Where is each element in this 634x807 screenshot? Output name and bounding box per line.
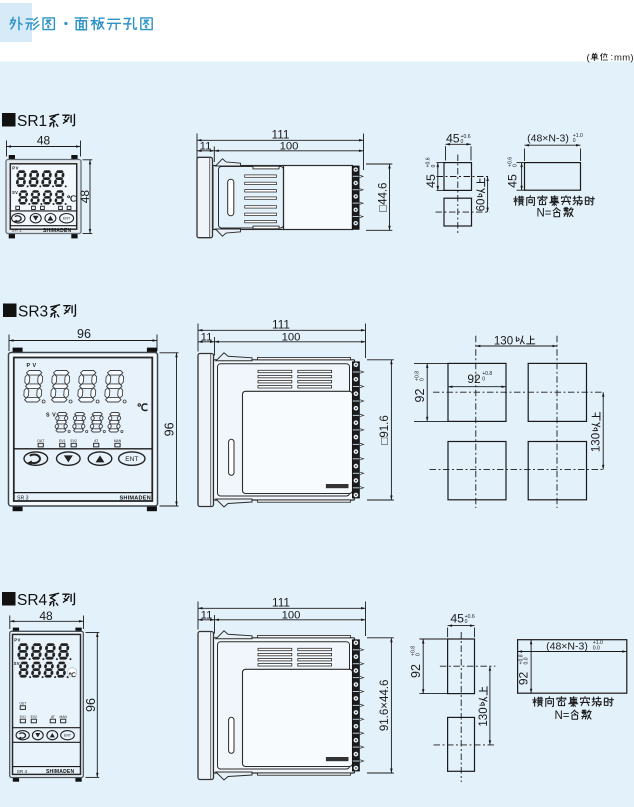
svg-text:96: 96 (77, 327, 91, 341)
svg-text:ENT: ENT (125, 456, 138, 463)
svg-text:ENT: ENT (64, 734, 72, 738)
svg-text:0: 0 (416, 653, 422, 656)
svg-text:AT: AT (51, 715, 55, 719)
svg-text:45: 45 (424, 174, 438, 188)
svg-text:0: 0 (512, 164, 518, 167)
svg-text:EV2: EV2 (70, 439, 77, 443)
svg-text:P V: P V (27, 363, 37, 369)
svg-text:SR3: SR3 (18, 304, 48, 321)
svg-text:mm): mm) (614, 53, 634, 64)
svg-text:SR1: SR1 (17, 113, 47, 130)
svg-text:□91.6: □91.6 (379, 415, 391, 444)
svg-text:S V: S V (46, 413, 56, 419)
svg-text:48: 48 (39, 609, 53, 623)
svg-text:92: 92 (517, 672, 531, 686)
svg-text:EV2: EV2 (31, 715, 37, 719)
svg-text:SHIMADEN: SHIMADEN (46, 769, 74, 775)
svg-text:130: 130 (478, 707, 490, 726)
svg-text:EV1: EV1 (20, 715, 26, 719)
svg-text:60: 60 (475, 199, 487, 212)
svg-text:SV: SV (14, 661, 20, 666)
svg-text:0: 0 (431, 165, 437, 168)
svg-text:MAN: MAN (114, 439, 122, 443)
svg-text:130: 130 (591, 433, 603, 452)
svg-text:0.0: 0.0 (523, 657, 529, 664)
svg-text:N=: N= (555, 710, 570, 722)
svg-text:□44.6: □44.6 (377, 183, 389, 212)
svg-text:MAN: MAN (60, 715, 68, 719)
svg-text:℃: ℃ (67, 193, 76, 203)
svg-text:SR 3: SR 3 (17, 495, 29, 501)
svg-text:PV: PV (12, 166, 19, 171)
svg-text:96: 96 (163, 422, 177, 436)
svg-text:0: 0 (420, 378, 426, 381)
svg-text:ENT: ENT (63, 217, 71, 221)
svg-text:96: 96 (84, 698, 98, 712)
svg-text:OUT: OUT (19, 702, 26, 706)
svg-text:92: 92 (409, 664, 423, 678)
svg-text:45: 45 (506, 174, 520, 188)
svg-text:92: 92 (413, 389, 427, 403)
svg-text:(48×N-3): (48×N-3) (546, 640, 588, 652)
svg-text:SR 4: SR 4 (17, 769, 28, 774)
svg-text:N=: N= (537, 208, 552, 220)
svg-text:111: 111 (272, 595, 290, 609)
svg-text:0.0: 0.0 (593, 645, 600, 651)
svg-text:111: 111 (272, 317, 290, 331)
svg-text:(48×N-3): (48×N-3) (527, 132, 569, 144)
svg-text::: : (611, 52, 614, 62)
svg-text:45: 45 (450, 612, 464, 626)
svg-text:EV1: EV1 (59, 439, 66, 443)
svg-text:OUT: OUT (37, 439, 44, 443)
svg-text:SV: SV (12, 190, 18, 195)
svg-text:SR4: SR4 (17, 592, 48, 609)
svg-text:℃: ℃ (137, 403, 148, 414)
svg-text:0: 0 (465, 619, 468, 625)
svg-text:45: 45 (446, 132, 460, 146)
svg-text:AT: AT (94, 439, 98, 443)
svg-text:48: 48 (78, 190, 92, 204)
svg-text:PV: PV (14, 637, 20, 642)
svg-text:SR 1: SR 1 (12, 228, 23, 233)
svg-text:0: 0 (482, 376, 485, 382)
svg-text:℃: ℃ (69, 671, 77, 679)
svg-text:48: 48 (37, 134, 51, 148)
svg-text:91.6×44.6: 91.6×44.6 (379, 680, 391, 731)
svg-text:0: 0 (573, 138, 576, 144)
svg-text:92: 92 (467, 372, 481, 386)
svg-text:SHIMADEN: SHIMADEN (120, 496, 151, 502)
svg-text:SHIMADEN: SHIMADEN (43, 228, 71, 234)
